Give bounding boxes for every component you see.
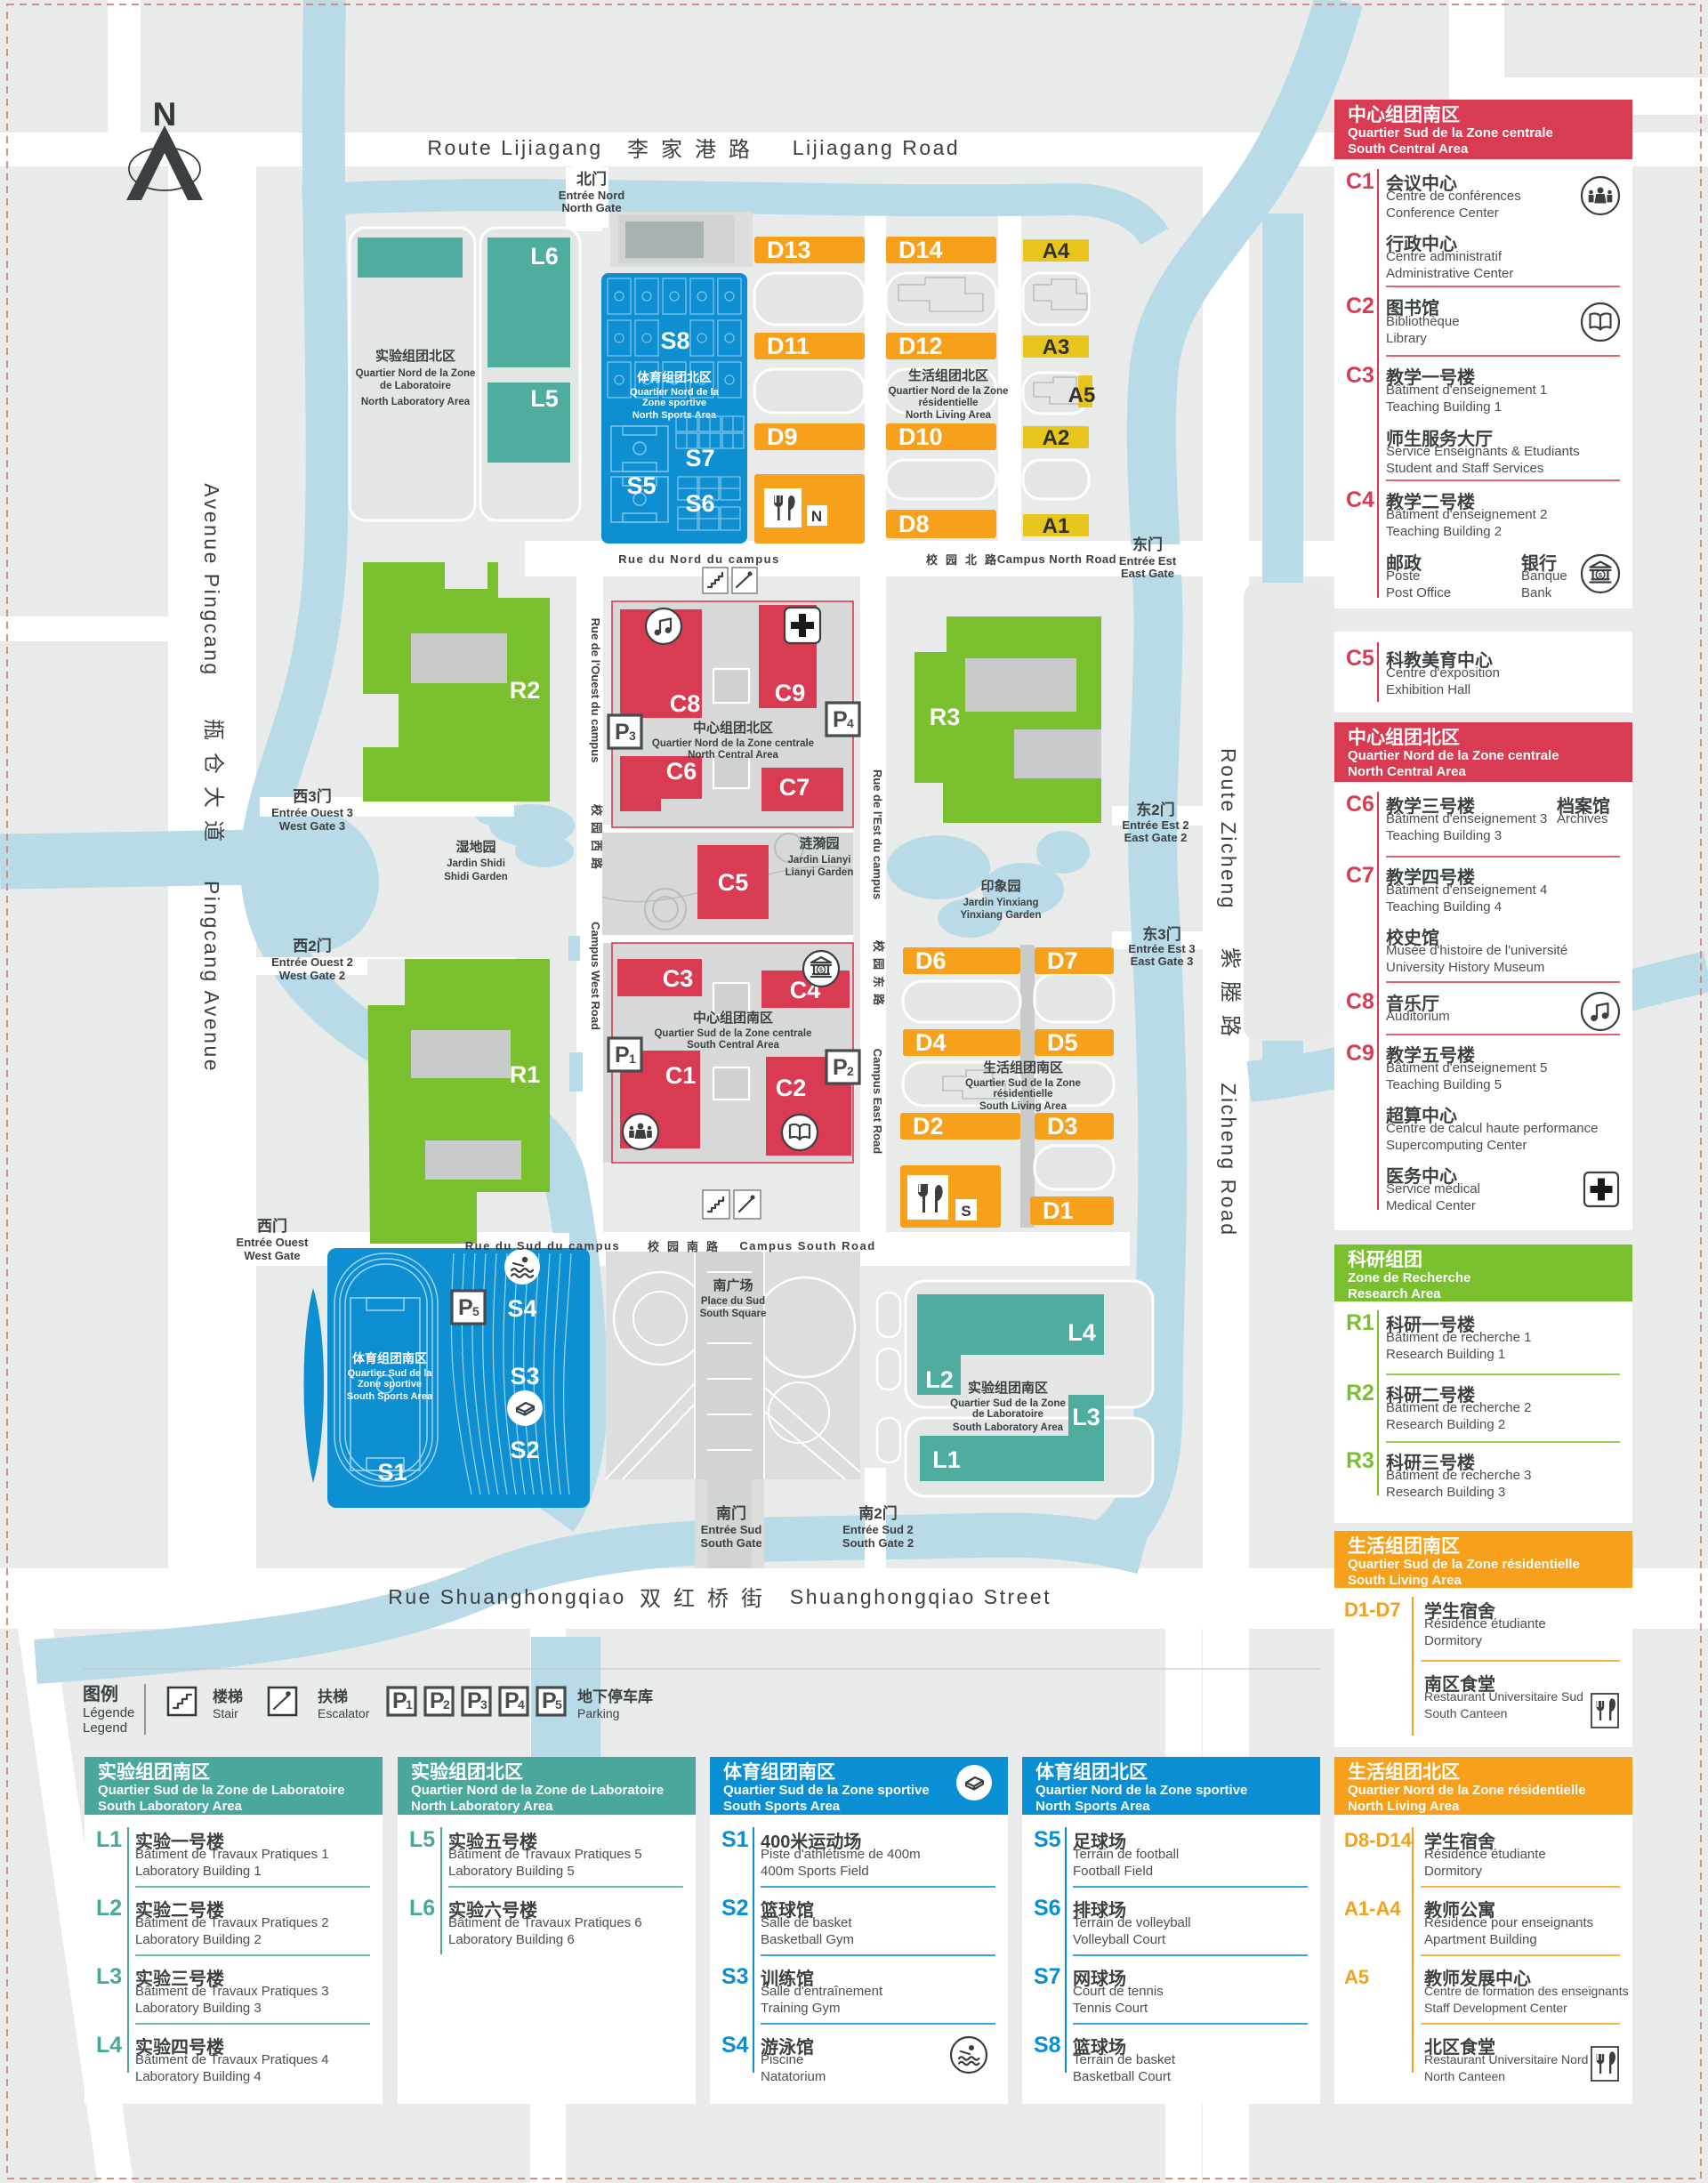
svg-text:C1: C1: [665, 1062, 697, 1089]
svg-text:C6: C6: [666, 758, 697, 785]
svg-text:Entrée Est 2: Entrée Est 2: [1122, 818, 1188, 832]
svg-text:生活组团南区: 生活组团南区: [983, 1059, 1063, 1075]
svg-text:扶梯: 扶梯: [318, 1688, 348, 1705]
svg-text:D4: D4: [915, 1029, 947, 1056]
svg-text:D13: D13: [767, 237, 811, 263]
svg-text:Jardin Lianyi: Jardin Lianyi: [788, 855, 851, 866]
svg-text:Légende: Légende: [83, 1705, 134, 1720]
svg-text:Rue du Sud du campus: Rue du Sud du campus: [465, 1239, 620, 1253]
svg-text:Entrée Sud 2: Entrée Sud 2: [842, 1523, 913, 1536]
svg-text:5: 5: [555, 1697, 562, 1712]
svg-text:South Central Area: South Central Area: [687, 1040, 779, 1051]
svg-text:校园东路: 校园东路: [872, 940, 885, 1011]
svg-text:D9: D9: [767, 423, 798, 450]
svg-text:中心组团北区: 中心组团北区: [693, 720, 773, 736]
svg-text:李家港路: 李家港路: [627, 138, 762, 162]
svg-text:C2: C2: [776, 1075, 807, 1101]
svg-text:de Laboratoire: de Laboratoire: [972, 1409, 1043, 1420]
svg-text:D1: D1: [1043, 1197, 1074, 1224]
svg-text:Entrée Est: Entrée Est: [1119, 554, 1177, 568]
svg-text:C8: C8: [670, 690, 701, 717]
svg-text:West Gate 2: West Gate 2: [279, 969, 345, 982]
svg-text:D10: D10: [898, 423, 943, 450]
svg-text:瓶仓大道: 瓶仓大道: [201, 719, 225, 854]
svg-text:C7: C7: [779, 774, 810, 801]
svg-text:Yinxiang Garden: Yinxiang Garden: [961, 910, 1042, 921]
svg-text:Entrée Est 3: Entrée Est 3: [1128, 942, 1195, 955]
svg-text:$: $: [819, 968, 823, 974]
svg-text:South Sports Area: South Sports Area: [347, 1391, 433, 1402]
svg-text:R3: R3: [930, 704, 961, 730]
svg-text:South Gate: South Gate: [700, 1536, 761, 1550]
svg-text:4: 4: [847, 716, 854, 730]
svg-text:Place du Sud: Place du Sud: [701, 1296, 765, 1307]
svg-text:South Square: South Square: [700, 1309, 767, 1319]
svg-text:L1: L1: [932, 1446, 961, 1473]
svg-text:体育组团北区: 体育组团北区: [637, 370, 712, 384]
svg-text:résidentielle: résidentielle: [918, 398, 978, 408]
svg-text:Lianyi Garden: Lianyi Garden: [786, 867, 854, 878]
svg-text:P: P: [458, 1295, 473, 1320]
svg-text:实验组团北区: 实验组团北区: [375, 348, 455, 364]
svg-text:印象园: 印象园: [980, 878, 1020, 894]
svg-text:4: 4: [518, 1697, 525, 1712]
svg-text:S8: S8: [660, 327, 689, 354]
svg-text:Quartier Nord de la Zone centr: Quartier Nord de la Zone centrale: [652, 738, 814, 749]
svg-text:N: N: [811, 508, 822, 525]
svg-text:S: S: [961, 1203, 971, 1220]
svg-text:North Sports Area: North Sports Area: [632, 410, 717, 421]
svg-text:Parking: Parking: [577, 1706, 619, 1720]
svg-text:Rue de l'Ouest du campus: Rue de l'Ouest du campus: [589, 618, 602, 763]
svg-text:D12: D12: [898, 333, 943, 359]
svg-text:North Living Area: North Living Area: [906, 410, 992, 421]
svg-text:3: 3: [480, 1697, 487, 1712]
svg-text:C3: C3: [663, 965, 694, 992]
svg-text:South Living Area: South Living Area: [979, 1101, 1067, 1112]
svg-text:L3: L3: [1072, 1404, 1100, 1430]
svg-text:Campus East Road: Campus East Road: [871, 1049, 884, 1155]
svg-text:Entrée Nord: Entrée Nord: [559, 189, 624, 202]
svg-text:中心组团南区: 中心组团南区: [693, 1010, 773, 1026]
svg-text:东3门: 东3门: [1142, 925, 1180, 943]
svg-text:S1: S1: [377, 1459, 407, 1486]
svg-text:West Gate: West Gate: [244, 1249, 300, 1262]
svg-text:1: 1: [629, 1051, 636, 1066]
svg-text:南2门: 南2门: [858, 1504, 897, 1522]
svg-text:Entrée Sud: Entrée Sud: [701, 1523, 762, 1536]
svg-text:de Laboratoire: de Laboratoire: [380, 381, 451, 391]
svg-text:L6: L6: [530, 243, 559, 270]
svg-text:D7: D7: [1047, 947, 1078, 974]
svg-text:South Laboratory Area: South Laboratory Area: [953, 1422, 1064, 1433]
svg-text:校园西路: 校园西路: [590, 804, 603, 875]
svg-text:D5: D5: [1047, 1029, 1078, 1056]
svg-text:Campus West Road: Campus West Road: [589, 922, 602, 1030]
svg-text:图例: 图例: [83, 1683, 118, 1704]
svg-text:South Gate 2: South Gate 2: [842, 1536, 914, 1550]
svg-text:A1: A1: [1043, 514, 1070, 538]
svg-text:西3门: 西3门: [293, 787, 331, 805]
svg-text:S3: S3: [510, 1363, 539, 1390]
svg-text:东2门: 东2门: [1136, 801, 1174, 818]
svg-text:West Gate 3: West Gate 3: [279, 819, 345, 833]
svg-text:Quartier Sud de la Zone: Quartier Sud de la Zone: [950, 1398, 1066, 1409]
svg-text:Jardin Shidi: Jardin Shidi: [447, 858, 505, 869]
svg-text:Quartier Nord de la: Quartier Nord de la: [630, 387, 720, 398]
svg-text:生活组团北区: 生活组团北区: [908, 367, 988, 383]
svg-text:S5: S5: [626, 472, 656, 499]
svg-text:P: P: [833, 1055, 848, 1080]
svg-text:涟漪园: 涟漪园: [799, 835, 839, 851]
svg-text:Campus South Road: Campus South Road: [739, 1239, 875, 1253]
svg-text:体育组团南区: 体育组团南区: [352, 1351, 427, 1365]
svg-text:湿地园: 湿地园: [455, 839, 495, 855]
svg-text:3: 3: [629, 729, 636, 743]
svg-text:楼梯: 楼梯: [213, 1688, 243, 1705]
svg-text:东门: 东门: [1132, 536, 1163, 553]
svg-text:5: 5: [472, 1304, 479, 1318]
svg-text:Avenue Pingcang: Avenue Pingcang: [200, 483, 223, 676]
svg-text:南广场: 南广场: [713, 1277, 753, 1293]
svg-text:校园北路: 校园北路: [926, 553, 1004, 567]
svg-text:Quartier Nord de la Zone: Quartier Nord de la Zone: [356, 368, 476, 379]
svg-text:紫塍路: 紫塍路: [1218, 947, 1242, 1049]
svg-text:D14: D14: [898, 237, 943, 263]
svg-text:南门: 南门: [716, 1504, 746, 1522]
svg-text:résidentielle: résidentielle: [993, 1089, 1052, 1100]
svg-text:Rue du Nord du campus: Rue du Nord du campus: [618, 552, 780, 566]
svg-text:Shidi Garden: Shidi Garden: [444, 872, 508, 882]
svg-text:Rue de l'Est du campus: Rue de l'Est du campus: [871, 769, 884, 899]
svg-text:East Gate 3: East Gate 3: [1131, 955, 1194, 968]
svg-text:L2: L2: [925, 1366, 954, 1393]
svg-text:Shuanghongqiao Street: Shuanghongqiao Street: [790, 1585, 1051, 1608]
svg-text:Quartier Sud de la: Quartier Sud de la: [348, 1368, 433, 1379]
svg-text:Pingcang Avenue: Pingcang Avenue: [200, 881, 223, 1073]
svg-text:S2: S2: [510, 1437, 539, 1463]
svg-text:L5: L5: [530, 385, 559, 412]
svg-text:S6: S6: [685, 490, 714, 517]
svg-text:P: P: [615, 1043, 630, 1067]
svg-text:D3: D3: [1047, 1113, 1078, 1140]
svg-text:D11: D11: [767, 333, 810, 359]
svg-text:D8: D8: [898, 511, 930, 537]
svg-text:S4: S4: [507, 1295, 536, 1322]
svg-text:Jardin Yinxiang: Jardin Yinxiang: [963, 898, 1039, 908]
svg-text:校园南路: 校园南路: [648, 1240, 726, 1253]
svg-text:North Laboratory Area: North Laboratory Area: [361, 397, 471, 407]
svg-text:North Central Area: North Central Area: [688, 750, 778, 761]
svg-text:East Gate 2: East Gate 2: [1124, 831, 1188, 844]
svg-text:S7: S7: [685, 445, 714, 471]
svg-text:North Gate: North Gate: [561, 201, 621, 214]
svg-text:西2门: 西2门: [293, 937, 331, 955]
svg-text:双红桥街: 双红桥街: [640, 1587, 775, 1611]
svg-text:D2: D2: [913, 1113, 944, 1140]
svg-text:P: P: [615, 720, 630, 745]
svg-text:Route Lijiagang: Route Lijiagang: [427, 136, 602, 159]
svg-text:R1: R1: [510, 1061, 541, 1088]
svg-text:A5: A5: [1068, 383, 1096, 407]
svg-text:Lijiagang Road: Lijiagang Road: [793, 136, 960, 159]
svg-text:Quartier Sud de la Zone centra: Quartier Sud de la Zone centrale: [654, 1028, 811, 1039]
svg-text:2: 2: [847, 1064, 854, 1078]
svg-text:C9: C9: [775, 680, 806, 706]
svg-text:Quartier Sud de la Zone: Quartier Sud de la Zone: [965, 1078, 1081, 1089]
svg-text:Escalator: Escalator: [318, 1706, 370, 1720]
svg-text:Entrée Ouest 2: Entrée Ouest 2: [271, 955, 353, 969]
svg-text:Zone sportive: Zone sportive: [642, 398, 706, 408]
svg-text:1: 1: [406, 1697, 413, 1712]
svg-text:实验组团南区: 实验组团南区: [968, 1380, 1048, 1396]
svg-text:A2: A2: [1043, 426, 1070, 450]
svg-text:A3: A3: [1043, 335, 1070, 359]
svg-text:D6: D6: [915, 947, 947, 974]
svg-text:R2: R2: [510, 677, 541, 704]
svg-text:Stair: Stair: [213, 1706, 238, 1720]
svg-text:Zicheng Road: Zicheng Road: [1217, 1083, 1240, 1236]
svg-text:A4: A4: [1043, 239, 1070, 263]
svg-text:C5: C5: [718, 869, 749, 896]
svg-text:Entrée Ouest 3: Entrée Ouest 3: [271, 806, 353, 819]
svg-text:East Gate: East Gate: [1121, 567, 1174, 580]
svg-text:Legend: Legend: [83, 1720, 127, 1736]
svg-text:Zone sportive: Zone sportive: [358, 1379, 422, 1390]
svg-text:2: 2: [443, 1697, 450, 1712]
svg-text:Route Zicheng: Route Zicheng: [1217, 748, 1240, 910]
svg-text:Campus North Road: Campus North Road: [997, 552, 1116, 566]
svg-text:地下停车库: 地下停车库: [577, 1688, 653, 1705]
svg-text:P: P: [833, 707, 848, 732]
svg-text:西门: 西门: [257, 1217, 287, 1235]
svg-text:北门: 北门: [576, 170, 607, 188]
svg-text:Quartier Nord de la Zone: Quartier Nord de la Zone: [889, 386, 1009, 397]
svg-text:Rue Shuanghongqiao: Rue Shuanghongqiao: [388, 1585, 626, 1608]
svg-text:L4: L4: [1067, 1319, 1096, 1346]
svg-text:Entrée Ouest: Entrée Ouest: [237, 1236, 310, 1249]
